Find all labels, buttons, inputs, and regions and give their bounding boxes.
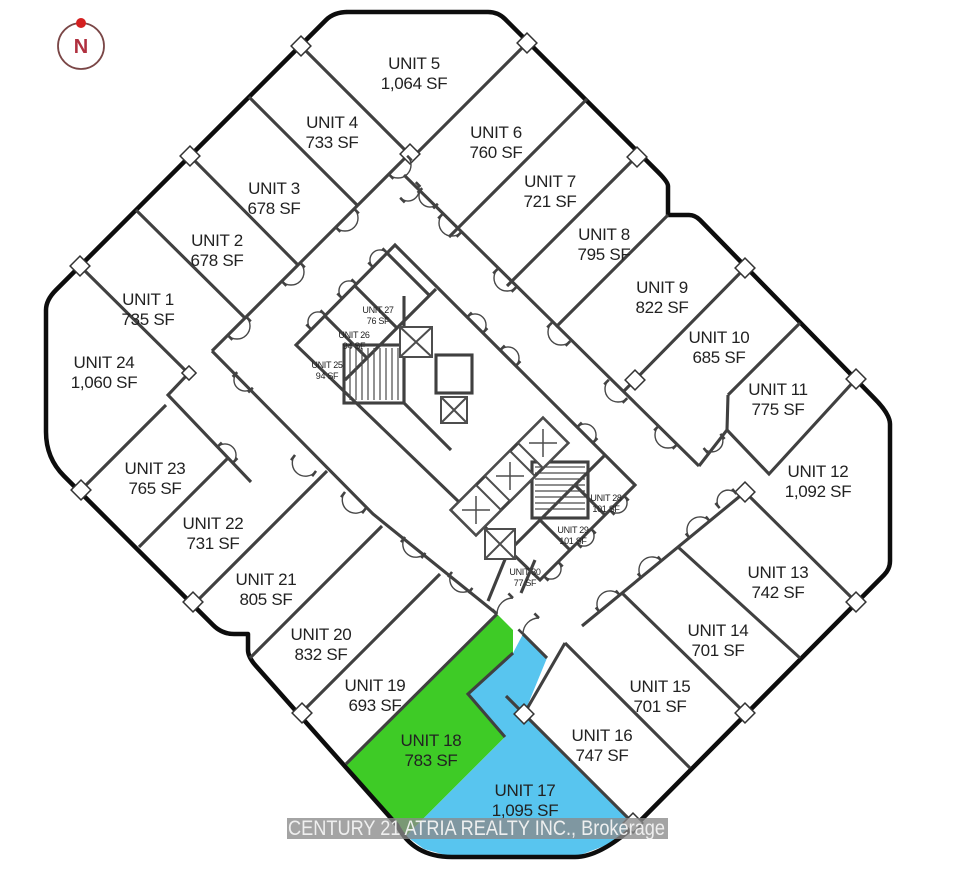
svg-text:685 SF: 685 SF xyxy=(692,348,745,367)
svg-text:UNIT 7: UNIT 7 xyxy=(524,172,576,191)
svg-text:UNIT 14: UNIT 14 xyxy=(688,621,749,640)
svg-text:94 SF: 94 SF xyxy=(343,341,366,351)
svg-text:UNIT 20: UNIT 20 xyxy=(291,625,352,644)
svg-text:747 SF: 747 SF xyxy=(575,746,628,765)
svg-text:UNIT 15: UNIT 15 xyxy=(630,677,691,696)
svg-text:UNIT 8: UNIT 8 xyxy=(578,225,630,244)
svg-text:UNIT 13: UNIT 13 xyxy=(748,563,809,582)
svg-text:UNIT 29: UNIT 29 xyxy=(557,525,589,535)
svg-text:731 SF: 731 SF xyxy=(186,534,239,553)
svg-text:77 SF: 77 SF xyxy=(514,578,537,588)
svg-text:UNIT 1: UNIT 1 xyxy=(122,290,174,309)
svg-text:UNIT 22: UNIT 22 xyxy=(183,514,244,533)
svg-text:UNIT 27: UNIT 27 xyxy=(362,305,394,315)
svg-text:UNIT 2: UNIT 2 xyxy=(191,231,243,250)
svg-text:76 SF: 76 SF xyxy=(367,316,390,326)
svg-text:UNIT 5: UNIT 5 xyxy=(388,54,440,73)
svg-text:UNIT 12: UNIT 12 xyxy=(788,462,849,481)
svg-text:760 SF: 760 SF xyxy=(469,143,522,162)
svg-text:795 SF: 795 SF xyxy=(577,245,630,264)
svg-text:UNIT 11: UNIT 11 xyxy=(748,380,808,399)
svg-text:UNIT 10: UNIT 10 xyxy=(689,328,750,347)
svg-text:783 SF: 783 SF xyxy=(404,751,457,770)
svg-text:101 SF: 101 SF xyxy=(559,536,587,546)
svg-text:101 SF: 101 SF xyxy=(592,504,620,514)
svg-text:701 SF: 701 SF xyxy=(633,697,686,716)
svg-text:735 SF: 735 SF xyxy=(121,310,174,329)
svg-text:UNIT 17: UNIT 17 xyxy=(495,781,556,800)
svg-text:UNIT 30: UNIT 30 xyxy=(509,567,541,577)
svg-text:832 SF: 832 SF xyxy=(294,645,347,664)
svg-text:1,060 SF: 1,060 SF xyxy=(71,373,138,392)
svg-text:UNIT 18: UNIT 18 xyxy=(401,731,462,750)
svg-text:822 SF: 822 SF xyxy=(635,298,688,317)
svg-text:UNIT 19: UNIT 19 xyxy=(345,676,406,695)
svg-text:UNIT 23: UNIT 23 xyxy=(125,459,186,478)
svg-text:N: N xyxy=(74,36,88,58)
svg-text:UNIT 9: UNIT 9 xyxy=(636,278,688,297)
svg-text:733 SF: 733 SF xyxy=(305,133,358,152)
svg-text:805 SF: 805 SF xyxy=(239,590,292,609)
svg-text:721 SF: 721 SF xyxy=(523,192,576,211)
svg-text:775 SF: 775 SF xyxy=(751,400,804,419)
svg-text:CENTURY 21 ATRIA REALTY INC.,: CENTURY 21 ATRIA REALTY INC., Brokerage xyxy=(288,817,665,840)
svg-text:678 SF: 678 SF xyxy=(247,199,300,218)
svg-text:UNIT 28: UNIT 28 xyxy=(590,493,622,503)
svg-text:678 SF: 678 SF xyxy=(190,251,243,270)
svg-text:1,064 SF: 1,064 SF xyxy=(381,74,448,93)
svg-text:UNIT 24: UNIT 24 xyxy=(74,353,135,372)
svg-text:765 SF: 765 SF xyxy=(128,479,181,498)
svg-text:UNIT 25: UNIT 25 xyxy=(311,360,343,370)
svg-text:UNIT 3: UNIT 3 xyxy=(248,179,300,198)
svg-text:UNIT 26: UNIT 26 xyxy=(338,330,370,340)
svg-text:UNIT 6: UNIT 6 xyxy=(470,123,522,142)
svg-text:1,092 SF: 1,092 SF xyxy=(785,482,852,501)
svg-text:UNIT 16: UNIT 16 xyxy=(572,726,633,745)
svg-text:UNIT 21: UNIT 21 xyxy=(236,570,297,589)
svg-text:UNIT 4: UNIT 4 xyxy=(306,113,358,132)
svg-text:94 SF: 94 SF xyxy=(316,371,339,381)
svg-text:742 SF: 742 SF xyxy=(751,583,804,602)
svg-text:693 SF: 693 SF xyxy=(348,696,401,715)
svg-text:701 SF: 701 SF xyxy=(691,641,744,660)
